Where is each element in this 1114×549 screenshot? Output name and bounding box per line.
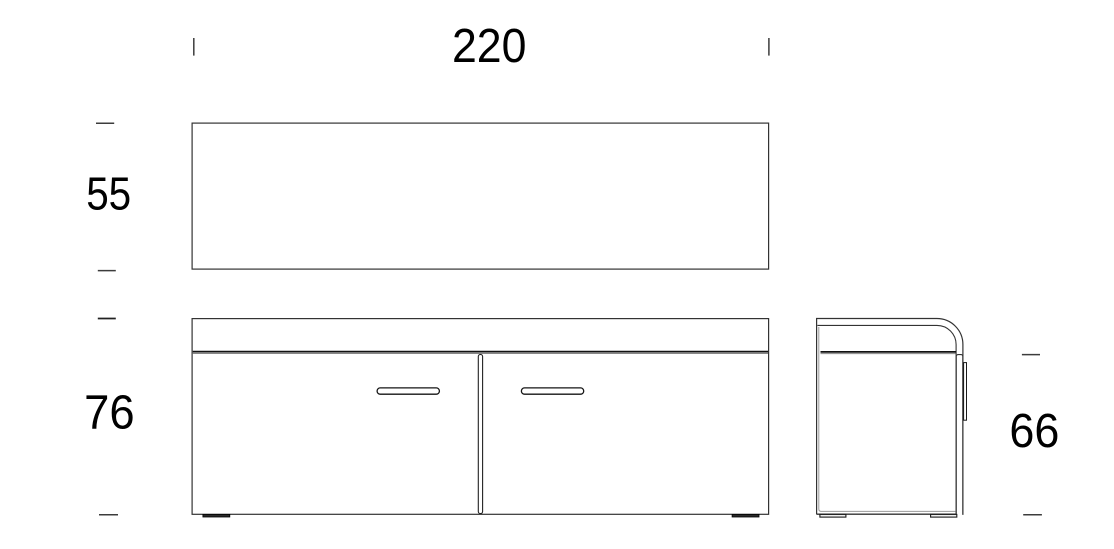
- svg-text:76: 76: [84, 387, 135, 440]
- svg-text:55: 55: [86, 168, 131, 220]
- svg-text:220: 220: [452, 20, 527, 73]
- svg-text:66: 66: [1009, 405, 1059, 458]
